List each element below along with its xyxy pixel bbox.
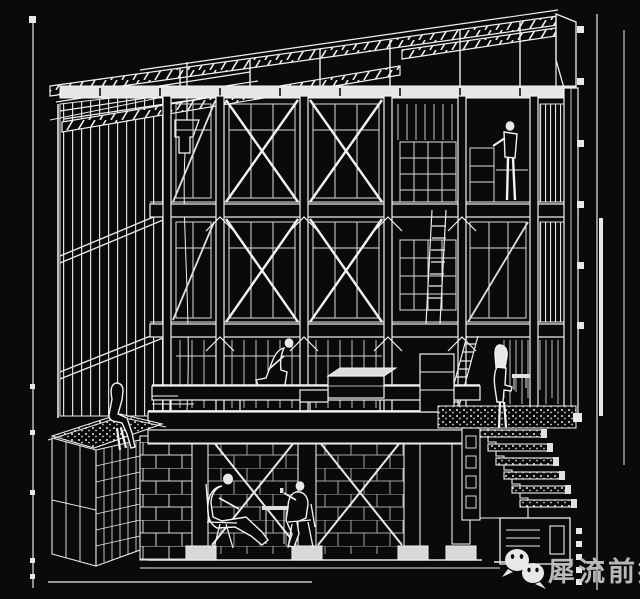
side-wall-left [50, 92, 163, 418]
drawing-canvas: 犀流前报 [0, 0, 640, 599]
top-plate-beam [60, 86, 576, 98]
watermark-text: 犀流前报 [548, 556, 640, 587]
architectural-section-drawing: 犀流前报 [0, 0, 640, 599]
